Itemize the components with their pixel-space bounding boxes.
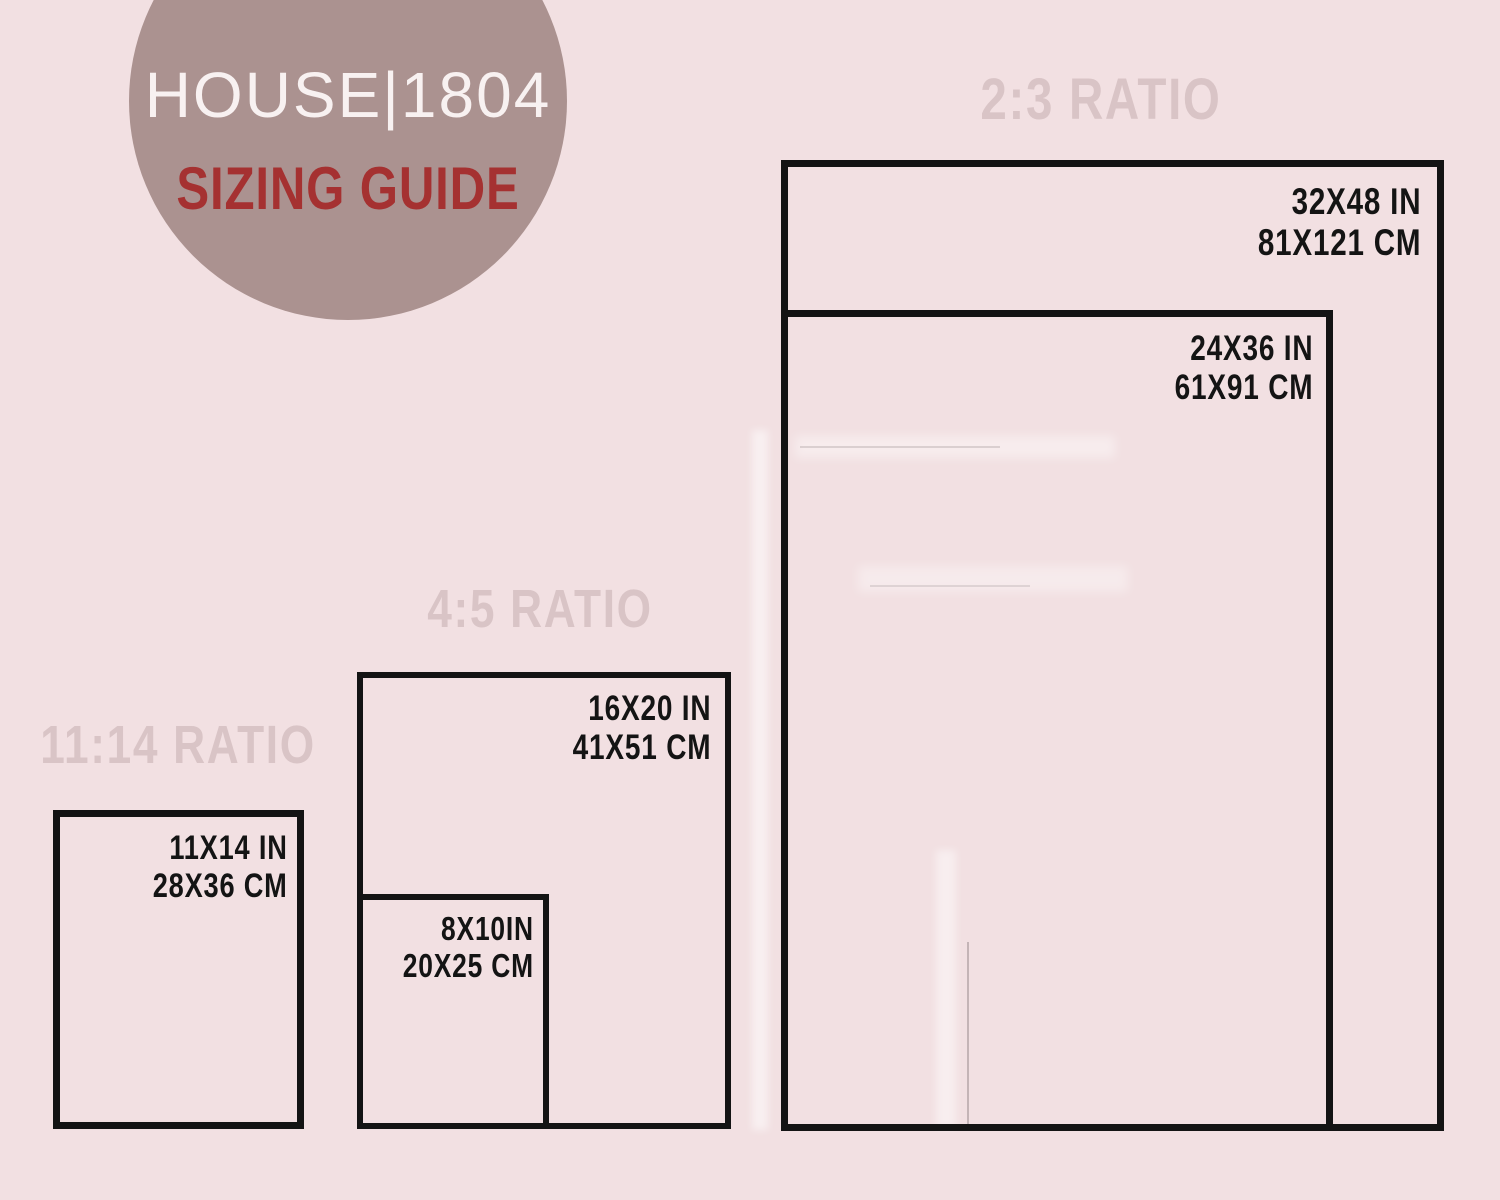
size-label-8x10: 8X10IN 20X25 CM <box>403 911 534 985</box>
size-label-16x20: 16X20 IN 41X51 CM <box>572 689 711 767</box>
size-rect-8x10: 8X10IN 20X25 CM <box>357 894 549 1129</box>
size-inches: 8X10IN <box>403 911 534 948</box>
size-label-32x48: 32X48 IN 81X121 CM <box>1257 181 1421 264</box>
size-inches: 32X48 IN <box>1257 181 1421 222</box>
size-inches: 24X36 IN <box>1174 329 1313 368</box>
size-cm: 81X121 CM <box>1257 222 1421 263</box>
size-cm: 41X51 CM <box>572 728 711 767</box>
size-label-11x14: 11X14 IN 28X36 CM <box>153 829 288 905</box>
artifact-white-streak <box>752 430 768 1130</box>
size-label-24x36: 24X36 IN 61X91 CM <box>1174 329 1313 407</box>
size-inches: 11X14 IN <box>153 829 288 867</box>
size-rect-11x14: 11X14 IN 28X36 CM <box>53 810 304 1129</box>
section-header-4-5: 4:5 RATIO <box>427 578 653 640</box>
logo-circle: HOUSE|1804 SIZING GUIDE <box>129 0 567 320</box>
brand-name: HOUSE|1804 <box>129 58 567 132</box>
size-inches: 16X20 IN <box>572 689 711 728</box>
size-cm: 28X36 CM <box>153 867 288 905</box>
logo-subtitle: SIZING GUIDE <box>168 154 527 223</box>
section-header-11-14: 11:14 RATIO <box>40 714 316 776</box>
section-header-2-3: 2:3 RATIO <box>980 66 1221 133</box>
size-rect-24x36: 24X36 IN 61X91 CM <box>781 310 1333 1131</box>
size-cm: 20X25 CM <box>403 948 534 985</box>
sizing-guide-canvas: HOUSE|1804 SIZING GUIDE 2:3 RATIO 4:5 RA… <box>0 0 1500 1200</box>
size-cm: 61X91 CM <box>1174 368 1313 407</box>
